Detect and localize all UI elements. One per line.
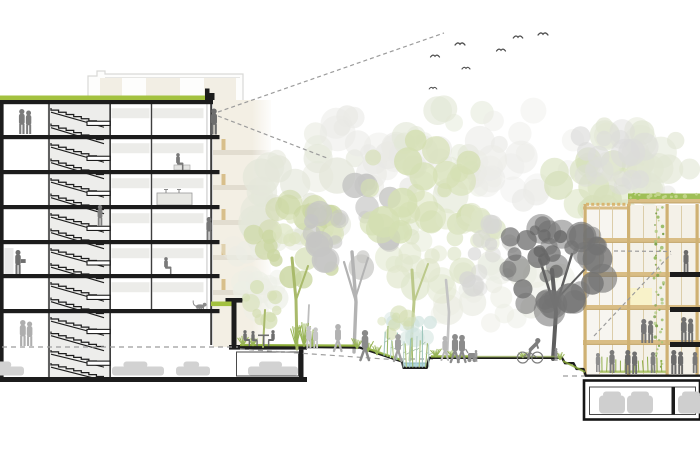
car-side [248,362,298,376]
interior-plant [607,357,608,372]
rect [313,331,318,341]
vine-leaf [655,230,658,233]
circle [335,324,341,330]
tree-canopy [250,280,264,294]
rect [632,356,637,366]
dark-tree-canopy [499,261,516,278]
rect [26,125,28,134]
circle [395,334,401,340]
vine-leaf [661,225,665,229]
pond-shrub-canopy [424,316,437,329]
tree-canopy [481,215,500,234]
vine-leaf [660,298,663,301]
bird [455,43,465,45]
rect [206,221,211,231]
circle [20,320,25,325]
background-canopy [585,157,614,186]
floor-slab [0,135,220,139]
vine-leaf [654,304,657,307]
rect [681,332,683,342]
tree-canopy [468,247,481,260]
circle [648,320,653,325]
parapet-dot [586,203,589,206]
rect [215,124,217,134]
path [537,344,539,348]
background-canopy [611,139,640,168]
circle [684,250,689,255]
parapet-dot [622,203,625,206]
interior-plant [638,361,639,372]
person-walk [361,330,369,360]
rect [613,364,615,373]
bird [513,36,522,38]
dark-tree-canopy [501,227,520,246]
circle [452,334,458,340]
rect [19,264,21,274]
vine-leaf [658,268,660,270]
circle [176,153,180,157]
rect [20,325,26,337]
tree-canopy [485,238,498,251]
person-cyclist [517,338,542,363]
vine-leaf [662,233,664,235]
vine-leaf [661,341,663,343]
roof-planting-dot [638,194,641,197]
wall-panel [5,248,14,274]
pond-shrub-canopy [385,328,397,340]
rect [693,356,698,365]
rect [210,231,212,240]
timber-column [666,204,669,375]
vine-leaf [654,243,657,246]
vine-leaf [654,311,657,314]
dark-tree-canopy [540,270,553,283]
ceiling-strip [112,143,150,153]
background-canopy [424,248,439,263]
background-canopy [540,158,569,187]
vine-leaf [658,345,660,347]
vine-leaf [655,352,658,355]
background-canopy [302,161,333,192]
circle [472,358,476,362]
rect [313,340,315,349]
ceiling-strip [153,213,204,223]
tree-canopy [422,136,450,164]
rect [27,336,29,346]
background-canopy [427,274,457,304]
tree-canopy [272,306,282,316]
car-side [0,362,24,376]
roof-planting-dot [671,193,674,196]
rect [684,263,686,272]
circle [596,353,600,357]
circle [459,335,465,341]
rect [476,357,477,362]
circle [98,205,102,209]
rect [164,260,168,267]
rect [674,364,676,374]
rect [683,254,688,264]
parapet-dots [586,203,631,206]
rect [609,354,614,364]
tree-canopy [303,225,321,243]
stair-landing [87,121,110,125]
rect [249,341,250,346]
background-canopy [336,105,358,127]
ceiling-strip [153,282,204,292]
ceiling-strip [153,108,204,118]
rect [183,362,199,369]
mullion [612,206,613,374]
roof-planting-dot [674,195,677,198]
parapet-dot [591,203,594,206]
background-canopy [520,98,546,124]
person-child [555,348,558,361]
roof-planting-dot [664,195,667,198]
reed-stem [390,340,391,358]
rect [475,352,478,357]
tree-canopy [447,247,461,261]
background-post [222,209,226,220]
rect [176,156,180,163]
bird [462,67,470,69]
rect [306,340,308,349]
circle [203,303,207,307]
tree-canopy [329,235,342,248]
rect [648,334,650,343]
roof-fascia-edge [628,203,700,204]
person-sit [164,257,171,274]
rect [635,365,637,374]
rect [258,335,269,337]
roof-planting-dot [695,193,698,196]
roof-planting-dot [650,195,653,198]
car-side [176,362,210,376]
rect [211,124,213,134]
rect [631,392,649,398]
rect [599,396,625,414]
rect [27,326,33,337]
kitchen-counter [157,193,192,205]
roof-fascia [628,199,700,203]
person-cat [193,301,206,310]
rect [263,336,265,346]
parapet-dot [607,203,610,206]
reed-leaf [413,349,416,351]
vine-leaf [654,335,657,338]
rect [29,125,31,134]
green-roof [0,96,205,101]
vine-leaf [661,206,664,209]
parapet-dot [612,203,615,206]
rect [671,364,673,374]
rect [170,268,172,274]
rect [0,362,11,369]
rect [203,307,204,309]
stair-landing [87,295,110,299]
ceiling-strip [112,108,150,118]
tree-canopy [365,150,381,166]
rect [598,364,600,372]
parapet-dot [602,203,605,206]
background-canopy [254,152,284,182]
line [466,349,469,353]
vine-leaf [659,331,662,334]
vine-leaf [654,224,656,226]
section-drawing-canvas [0,0,700,466]
ceiling-strip [112,213,150,223]
floor-slab [0,309,220,313]
balcony-slab-cut [670,342,700,347]
vine-leaf [656,274,659,277]
floor-slab [0,170,220,174]
circle [207,217,212,222]
car-side [112,362,164,376]
vine-leaf [656,216,659,219]
vine-leaf [661,328,663,330]
rect [678,396,700,414]
background-canopy [411,230,433,252]
rect [651,334,653,343]
floor-slab [0,274,220,278]
tree-canopy [330,210,349,229]
vine-leaf [656,208,659,211]
tree-canopy [410,162,438,190]
tree-canopy [255,240,275,260]
ceiling-strip [153,143,204,153]
rect [101,218,103,226]
rect [30,336,32,346]
circle [475,350,478,353]
person-pair [20,320,33,346]
background-parapet-line [105,77,240,78]
annex-green-roof [211,302,232,307]
tree-canopy [312,248,337,273]
roof-slab [0,100,213,104]
background-canopy [431,95,458,122]
rect [26,115,31,126]
rect [22,124,24,134]
rect [475,357,476,362]
vine-leaf [655,324,658,327]
rect [19,124,21,134]
circle [678,351,683,356]
vine-leaf [658,309,660,311]
pond-shrub-canopy [399,310,416,327]
roof-planting-dot [629,196,631,198]
rect [644,333,646,343]
person-pair [19,109,31,134]
circle [26,111,31,116]
reed-stem [387,326,388,357]
rect [306,330,311,340]
rect [23,336,25,346]
roof-planting-dot [656,192,660,196]
parapet-dot [617,203,620,206]
circle [251,331,254,334]
tree-canopy [389,220,413,244]
tree-canopy [252,309,261,318]
balcony-slab-cut [670,272,700,277]
rect [555,356,556,361]
vine-leaf [653,315,656,318]
vine-leaf [658,220,660,222]
vine-leaf [655,255,657,257]
background-post [222,174,226,185]
vine-leaf [656,348,658,350]
background-canopy [505,141,538,174]
background-post [222,139,226,150]
rect [19,114,25,125]
stair-landing [87,156,110,160]
dark-tree-canopy [508,247,522,261]
circle [164,257,168,261]
rect [651,365,653,373]
rect [696,365,698,373]
rect [648,325,653,335]
vine-leaf [663,284,665,286]
circle [15,250,20,255]
bird-flock [429,33,548,89]
bird [431,55,440,57]
rect [603,392,621,398]
rect [625,364,627,374]
rect [468,353,476,359]
rect [271,333,275,340]
circle [211,109,216,114]
background-canopy [596,131,611,146]
stair-landing [87,261,110,265]
kitchen-taps [164,190,181,194]
vine-leaf [659,271,661,273]
roof-planting-dot [683,194,687,198]
dark-tree-canopy [535,216,551,232]
tree-canopy [273,223,294,244]
balcony-slab-cut [670,307,700,312]
rect [678,356,683,366]
stair-landing [87,191,110,195]
vine-leaf [659,286,662,289]
background-canopy [495,304,515,324]
vine-leaf [655,212,657,214]
dark-tree-canopy [544,245,561,262]
rect [98,218,100,226]
background-canopy [654,154,684,184]
bird [497,49,506,51]
rect [268,341,269,346]
circle [306,326,311,331]
rect [671,354,677,365]
path [531,343,537,349]
background-post [222,279,226,290]
background-canopy [667,132,684,149]
vine-leaf [655,291,657,293]
floor-slab [0,240,220,244]
vine-leaf [661,302,664,305]
circle [625,350,630,355]
vine-leaf [653,277,656,280]
rect [21,259,26,263]
dark-tree-canopy [581,272,604,295]
rect [256,341,257,346]
rect [682,392,700,398]
rect [251,334,254,340]
rect [15,254,21,265]
lit-window [628,288,652,306]
circle [19,109,24,114]
rect [684,332,686,342]
circle [651,352,655,356]
rect [651,356,656,365]
rect [681,365,683,374]
rect [556,356,557,361]
ceiling-strip [112,282,150,292]
rect [687,263,689,272]
timber-column [696,204,699,375]
vine-leaf [655,355,657,357]
annex-wall [232,302,237,346]
roof-planting-dot [636,196,640,200]
rect [309,340,311,349]
tree-canopy [462,275,484,297]
dark-tree-canopy [534,245,546,257]
circle [671,350,676,355]
circle [467,358,471,362]
rect [207,231,209,240]
parapet-dot [596,203,599,206]
vine-leaf [660,246,664,250]
circle [362,330,368,336]
circle [693,352,697,356]
tree-canopy [267,291,277,301]
parapet-dot [628,203,631,206]
background-canopy [631,170,649,188]
circle [555,348,558,351]
rect [678,365,680,374]
dark-tree-canopy [583,244,613,274]
bird [538,33,548,35]
rect [316,340,318,349]
stair-landing [87,329,110,333]
tree-canopy [361,179,380,198]
stair-landing [87,226,110,230]
ceiling-strip [112,178,150,188]
rect [681,322,687,333]
rect [693,365,695,373]
vine-leaf [658,236,660,238]
ceiling-strip [112,248,150,258]
mullion [681,206,682,374]
bird [429,87,437,89]
left-exterior-wall [0,100,4,382]
rect [632,365,634,374]
background-canopy [614,177,631,194]
tree-canopy [436,209,457,230]
rect [688,333,690,342]
vine-leaf [657,294,659,296]
person-stand [206,217,211,240]
rect [628,364,630,374]
rect [199,307,200,309]
stair-landing [87,361,110,365]
circle [27,322,32,327]
rect [688,323,693,334]
ceiling-strip [153,248,204,258]
rect [259,362,282,369]
circle [681,317,686,322]
rect [211,113,217,125]
rect [625,354,631,365]
